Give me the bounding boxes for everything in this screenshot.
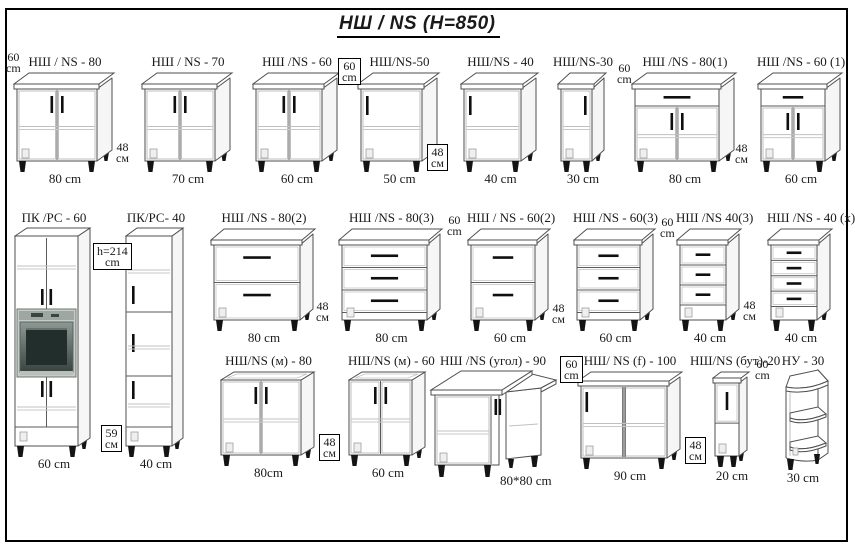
width-label: 50 cm	[357, 171, 442, 187]
cabinet-title: НШ /NS (угол) - 90	[428, 354, 558, 368]
width-label: 40 cm	[125, 456, 187, 472]
width-label: 80cm	[220, 465, 317, 481]
cabinet-drawing	[467, 225, 553, 332]
dim-annotation: 60cm	[660, 217, 675, 238]
cabinet-title: НШ/NS - 40	[460, 55, 541, 69]
width-label: 60 cm	[757, 171, 845, 187]
dim-annotation: 48см	[319, 434, 340, 461]
width-label: 80*80 cm	[500, 473, 552, 489]
cabinet-drawing	[220, 368, 317, 467]
width-label: 70 cm	[141, 171, 235, 187]
cabinet-cell: НШ/ NS (f) - 100 90 cm	[577, 354, 683, 484]
cabinet-title: НШ /NS - 40 (х)	[767, 211, 835, 225]
cabinet-cell: ПК /РС - 60 60 cm	[14, 211, 94, 472]
cabinet-cell: НШ /NS (угол) - 90 80*80 cm	[428, 354, 558, 488]
width-label: 60 cm	[14, 456, 94, 472]
cabinet-title: НШ /NS - 80(1)	[630, 55, 740, 69]
cabinet-cell: НШ / NS - 70 70 cm	[141, 55, 235, 187]
cabinet-cell: НШ /NS - 60 60 cm	[252, 55, 342, 187]
cabinet-title: НШ/NS (м) - 80	[220, 354, 317, 368]
dim-annotation: 48см	[552, 303, 565, 324]
cabinet-cell: НШ /NS - 60(3) 60 cm	[573, 211, 658, 346]
cabinet-cell: НШ /NS - 60 (1) 60 cm	[757, 55, 845, 187]
cabinet-drawing	[757, 69, 845, 173]
cabinet-drawing	[577, 368, 683, 470]
cabinet-title: НШ / NS - 70	[141, 55, 235, 69]
dim-annotation: 59см	[101, 425, 122, 452]
catalog-sheet: НШ / NS (H=850) НШ / NS - 80 80 cm НШ / …	[0, 0, 855, 548]
dim-annotation: 60cm	[6, 52, 21, 73]
dim-annotation: 60cm	[447, 215, 462, 236]
cabinet-title: НУ - 30	[772, 354, 834, 368]
cabinet-title: НШ /NS 40(3)	[676, 211, 744, 225]
width-label: 40 cm	[460, 171, 541, 187]
dim-annotation: 48см	[743, 300, 756, 321]
cabinet-cell: НШ /NS - 80(3) 80 cm	[338, 211, 445, 346]
cabinet-drawing	[573, 225, 658, 332]
page-title: НШ / NS (H=850)	[337, 13, 500, 38]
cabinet-title: НШ/NS-50	[357, 55, 442, 69]
cabinet-cell: НШ/NS (м) - 60 60 cm	[348, 354, 428, 481]
cabinet-title: ПК/РС- 40	[125, 211, 187, 225]
cabinet-drawing	[13, 69, 117, 173]
cabinet-drawing	[252, 69, 342, 173]
cabinet-drawing	[557, 69, 609, 173]
cabinet-drawing	[125, 225, 187, 458]
width-label: 40 cm	[767, 330, 835, 346]
cabinet-title: НШ/NS-30	[552, 55, 614, 69]
width-label: 40 cm	[676, 330, 744, 346]
dim-annotation: 48см	[735, 143, 748, 164]
cabinet-title: НШ /NS - 80(3)	[338, 211, 445, 225]
cabinet-title: НШ /NS - 60(3)	[573, 211, 658, 225]
cabinet-drawing	[141, 69, 235, 173]
cabinet-drawing	[767, 225, 835, 332]
width-label: 80 cm	[630, 171, 740, 187]
cabinet-title: НШ/NS (м) - 60	[348, 354, 428, 368]
dim-annotation: 60cm	[755, 359, 770, 380]
dim-annotation: 60cm	[617, 63, 632, 84]
cabinet-drawing	[712, 368, 752, 470]
cabinet-drawing	[338, 225, 445, 332]
width-label: 60 cm	[252, 171, 342, 187]
cabinet-drawing	[14, 225, 94, 458]
width-label: 80 cm	[210, 330, 318, 346]
cabinet-title: НШ /NS - 60 (1)	[757, 55, 845, 69]
dim-annotation: 48см	[427, 144, 448, 171]
width-label: 20 cm	[690, 468, 774, 484]
width-label: 60 cm	[467, 330, 553, 346]
cabinet-drawing	[631, 69, 739, 173]
width-label: 30 cm	[772, 470, 834, 486]
dim-annotation: 48см	[685, 437, 706, 464]
width-label: 60 cm	[573, 330, 658, 346]
dim-annotation: 48см	[316, 301, 329, 322]
cabinet-cell: НШ/NS-30 30 cm	[552, 55, 614, 187]
cabinet-cell: НШ /NS 40(3) 40 cm	[676, 211, 744, 346]
cabinet-title: НШ /NS - 60	[252, 55, 342, 69]
width-label: 30 cm	[552, 171, 614, 187]
cabinet-cell: ПК/РС- 40 40 cm	[125, 211, 187, 472]
cabinet-cell: НШ / NS - 60(2) 60 cm	[467, 211, 553, 346]
width-label: 80 cm	[338, 330, 445, 346]
cabinet-cell: НШ /NS - 40 (х) 40 cm	[767, 211, 835, 346]
cabinet-cell: НШ /NS - 80(1) 80 cm	[630, 55, 740, 187]
cabinet-drawing	[676, 225, 744, 332]
dim-annotation: 48см	[116, 142, 129, 163]
dim-annotation: h=214cm	[93, 243, 132, 270]
width-label: 60 cm	[348, 465, 428, 481]
dim-annotation: 60cm	[338, 58, 361, 85]
width-label: 90 cm	[577, 468, 683, 484]
cabinet-cell: НШ/NS (м) - 80 80cm	[220, 354, 317, 481]
cabinet-drawing	[210, 225, 318, 332]
cabinet-cell: НШ / NS - 80 80 cm	[13, 55, 117, 187]
cabinet-drawing	[428, 368, 558, 483]
cabinet-drawing	[348, 368, 428, 467]
cabinet-drawing	[460, 69, 541, 173]
cabinet-title: НШ /NS - 80(2)	[210, 211, 318, 225]
dim-annotation: 60cm	[560, 356, 583, 383]
cabinet-title: НШ / NS - 80	[13, 55, 117, 69]
width-label: 80 cm	[13, 171, 117, 187]
cabinet-cell: НУ - 30 30 cm	[772, 354, 834, 486]
cabinet-title: ПК /РС - 60	[14, 211, 94, 225]
cabinet-drawing	[774, 368, 832, 472]
cabinet-cell: НШ /NS - 80(2) 80 cm	[210, 211, 318, 346]
cabinet-title: НШ/ NS (f) - 100	[577, 354, 683, 368]
cabinet-cell: НШ/NS - 40 40 cm	[460, 55, 541, 187]
cabinet-title: НШ / NS - 60(2)	[467, 211, 553, 225]
